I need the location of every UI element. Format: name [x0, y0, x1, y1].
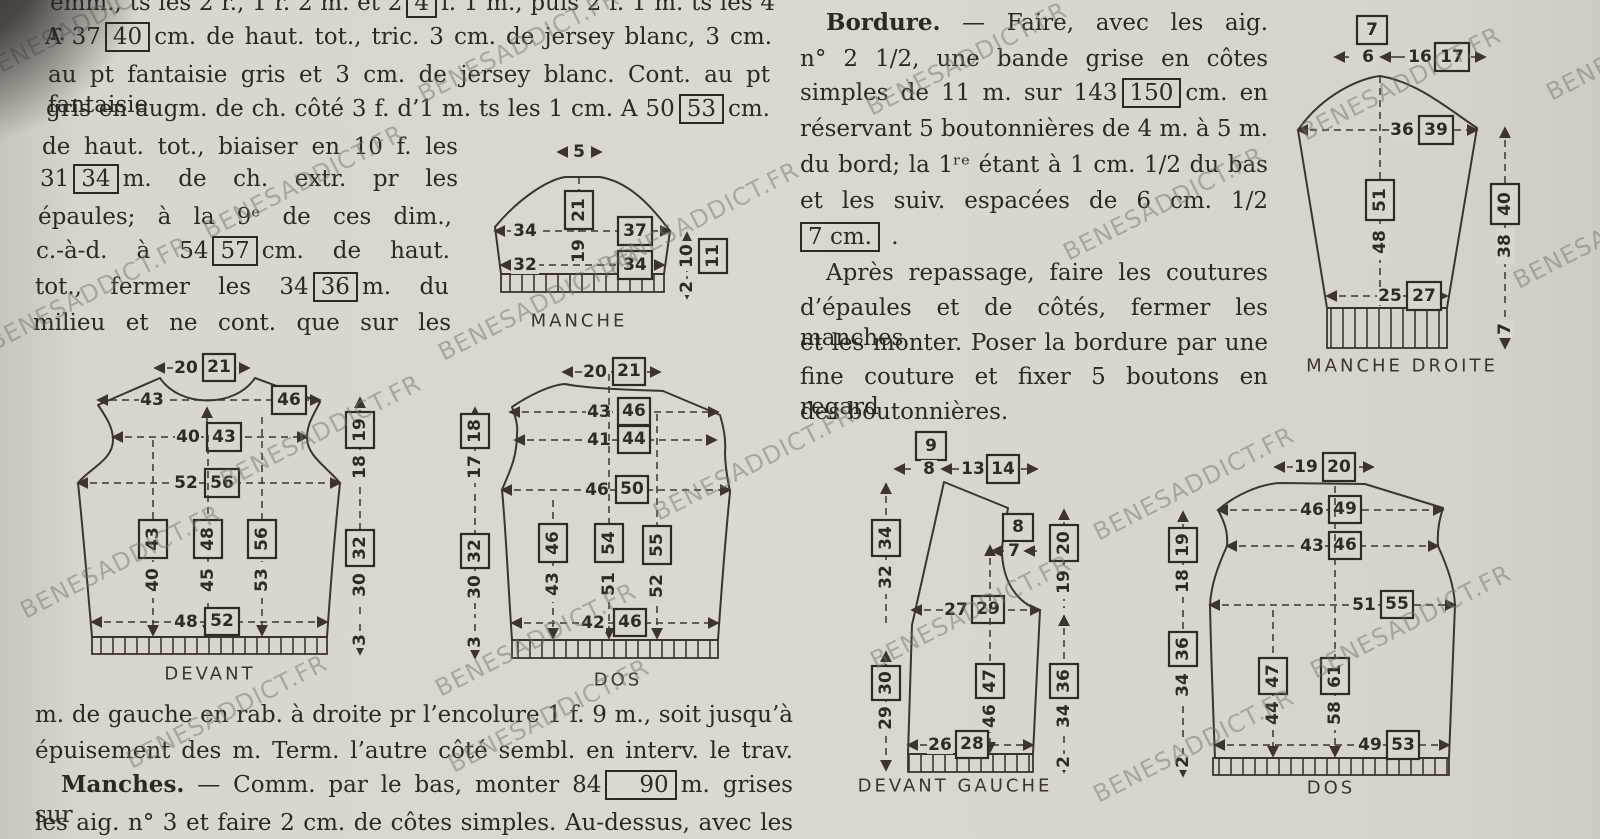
dos-hip-boxed: 46 [618, 612, 642, 632]
devant-chest-boxed: 56 [210, 473, 234, 493]
dg-rib-height: 2 [1054, 756, 1074, 768]
devant-outline [78, 378, 340, 637]
manche-side-height-boxed: 11 [703, 244, 723, 268]
devant-armhole-boxed: 19 [350, 418, 370, 442]
dos2-chest-boxed: 55 [1385, 594, 1409, 614]
devant-armhole: 18 [350, 455, 370, 479]
dos-rib [512, 640, 718, 658]
boxed-size-value: 90 [605, 770, 676, 800]
dos2-upper: 43 [1300, 536, 1324, 556]
dg-top-boxed: 9 [925, 436, 937, 456]
manche-top-width: 5 [573, 142, 585, 162]
manche-diagram: 5 21 19 34 37 32 34 10 11 2 MANCHE [480, 135, 770, 335]
devant-rib-height: 3 [350, 634, 370, 646]
devant-hip-boxed: 52 [210, 611, 234, 631]
dg-left-boxed: 34 [876, 526, 896, 550]
dg-left: 32 [876, 565, 896, 589]
text-segment: — Faire, avec les aig. [962, 10, 1268, 36]
dos-diagram: 20 21 43 46 41 44 46 50 46 43 54 [428, 350, 763, 690]
devant-upper: 40 [176, 427, 200, 447]
dos-armhole-boxed: 18 [465, 419, 485, 443]
manche-height-boxed: 21 [569, 198, 589, 222]
manche-height: 19 [569, 239, 589, 263]
devant-len2-boxed: 48 [198, 527, 218, 551]
dg-left2-boxed: 30 [876, 671, 896, 695]
boxed-size-value: 57 [212, 236, 257, 266]
text-segment: simples de 11 m. sur 143 [800, 80, 1118, 106]
dos2-neck-boxed: 20 [1327, 457, 1351, 477]
text-segment: cm. de haut. [262, 238, 450, 264]
devant-len3: 53 [252, 568, 272, 592]
text-segment: c.-à-d. à 54 [36, 238, 208, 264]
dg-mid-boxed: 47 [980, 669, 1000, 693]
dos2-len2: 58 [1325, 701, 1345, 725]
text-line: les aig. n° 3 et faire 2 cm. de côtes si… [35, 808, 793, 838]
devant-side: 30 [350, 573, 370, 597]
devant-label: DEVANT [164, 664, 255, 685]
manche-rib-height: 2 [677, 281, 697, 293]
dos-side-boxed: 32 [465, 539, 485, 563]
dos2-rib [1213, 758, 1449, 775]
dos-neck-boxed: 21 [617, 361, 641, 381]
dos2-side: 34 [1173, 673, 1193, 697]
text-line: c.-à-d. à 5457cm. de haut. [36, 236, 450, 266]
dg-waist-boxed: 29 [976, 599, 1000, 619]
manche-label: MANCHE [531, 311, 628, 332]
dg-top-right: 13 [961, 459, 985, 479]
dos2-shoulder-boxed: 49 [1333, 499, 1357, 519]
dos-len1-boxed: 46 [543, 531, 563, 555]
text-line: milieu et ne cont. que sur les [33, 308, 451, 338]
dos-len1: 43 [543, 572, 563, 596]
dos2-rib-height: 2 [1173, 756, 1193, 768]
text-segment: tot., fermer les 34 [35, 274, 309, 300]
text-segment: A 37 [45, 24, 101, 50]
devant-diagram: 20 21 43 46 40 43 52 56 43 40 [35, 350, 385, 685]
dos-hip: 42 [581, 613, 605, 633]
dg-neck: 7 [1008, 541, 1020, 561]
manche-droite-dimensions: 7 6 16 17 36 39 51 48 25 27 [1298, 16, 1519, 348]
md-height: 48 [1370, 230, 1390, 254]
devant-gauche-dimensions: 9 8 13 14 34 32 8 7 20 19 [872, 432, 1078, 772]
md-cap-left: 6 [1362, 47, 1374, 67]
paragraph-heading: Manches. [61, 771, 184, 798]
text-segment: 31 [40, 166, 69, 192]
devant-shoulder: 43 [140, 390, 164, 410]
dos-armhole: 17 [465, 455, 485, 479]
devant-neck-boxed: 21 [207, 357, 231, 377]
dos2-shoulder: 46 [1300, 500, 1324, 520]
text-segment: . [891, 224, 898, 250]
boxed-size-value: 150 [1122, 78, 1182, 108]
md-rib-height: 7 [1495, 323, 1515, 335]
dos-shoulder-boxed: 46 [622, 401, 646, 421]
text-line: n° 2 1/2, une bande grise en côtes [800, 44, 1268, 74]
dos2-dimensions: 19 20 46 49 43 46 51 55 47 44 61 [1169, 453, 1455, 776]
md-side-boxed: 40 [1495, 192, 1515, 216]
text-line: et les monter. Poser la bordure par une [800, 328, 1268, 358]
md-width: 36 [1390, 120, 1414, 140]
devant-len1: 40 [143, 568, 163, 592]
dos2-label: DOS [1307, 778, 1355, 796]
text-line: réservant 5 boutonnières de 4 m. à 5 m. [800, 114, 1268, 144]
devant-upper-boxed: 43 [212, 427, 236, 447]
boxed-size-value: 40 [105, 22, 150, 52]
md-width-boxed: 39 [1424, 120, 1448, 140]
text-segment: m. de ch. extr. pr les [123, 166, 458, 192]
boxed-size-value: 53 [679, 94, 724, 124]
dos2-armhole: 18 [1173, 569, 1193, 593]
devant-len3-boxed: 56 [252, 527, 272, 551]
dg-top-right-boxed: 14 [991, 459, 1015, 479]
dg-waist: 27 [944, 600, 968, 620]
dos2-upper-boxed: 46 [1333, 535, 1357, 555]
md-wrist-boxed: 27 [1412, 286, 1436, 306]
dos2-neck: 19 [1294, 457, 1318, 477]
devant-gauche-diagram: 9 8 13 14 34 32 8 7 20 19 [855, 420, 1190, 795]
dos-len3-boxed: 55 [647, 533, 667, 557]
text-line: m. de gauche en rab. à droite pr l’encol… [35, 700, 793, 730]
dg-armhole-boxed: 20 [1054, 531, 1074, 555]
devant-hip: 48 [174, 612, 198, 632]
dg-right-boxed: 36 [1054, 669, 1074, 693]
text-segment: emm., ts les 2 r., 1 r. 2 m. et 2 [50, 0, 402, 16]
md-cap-right-boxed: 17 [1440, 47, 1464, 67]
md-cap-right: 16 [1408, 47, 1432, 67]
text-line: tot., fermer les 3436m. du [35, 272, 449, 302]
dos2-hip: 49 [1358, 735, 1382, 755]
dg-mid: 46 [980, 704, 1000, 728]
text-line: épaules; à la 9ᵉ de ces dim., [38, 202, 452, 232]
text-line: Bordure. — Faire, avec les aig. [800, 8, 1268, 38]
boxed-size-value: 4 [406, 0, 437, 18]
md-cap-boxed: 7 [1366, 20, 1378, 40]
devant-shoulder-boxed: 46 [277, 390, 301, 410]
boxed-size-value: 34 [73, 164, 118, 194]
text-line: et les suiv. espacées de 6 cm. 1/2 [800, 186, 1268, 216]
text-segment: m. du [362, 274, 449, 300]
text-segment: cm. [728, 96, 770, 122]
devant-chest: 52 [174, 473, 198, 493]
dg-top-left: 8 [923, 459, 935, 479]
dos2-armhole-boxed: 19 [1173, 533, 1193, 557]
devant-len2: 45 [198, 568, 218, 592]
boxed-size-value: 7 cm. [800, 222, 880, 252]
text-line: gris en augm. de ch. côté 3 f. d’1 m. ts… [46, 94, 770, 124]
devant-len1-boxed: 43 [143, 527, 163, 551]
dos-chest: 46 [585, 480, 609, 500]
devant-gauche-label: DEVANT GAUCHE [858, 776, 1053, 796]
dos2-side-boxed: 36 [1173, 637, 1193, 661]
devant-rib [92, 637, 327, 654]
dos-len2: 51 [599, 572, 619, 596]
manche-upper-width-boxed: 37 [623, 221, 647, 241]
dos-label: DOS [594, 670, 642, 691]
dos-side: 30 [465, 575, 485, 599]
dg-hip: 26 [928, 735, 952, 755]
dg-armhole: 19 [1054, 570, 1074, 594]
dos2-len1: 44 [1263, 701, 1283, 725]
dos-upper-boxed: 44 [622, 429, 646, 449]
manche-lower-width: 32 [513, 255, 537, 275]
dg-hip-boxed: 28 [960, 734, 984, 754]
text-line: du bord; la 1ʳᵉ étant à 1 cm. 1/2 du bas [800, 150, 1268, 180]
boxed-size-value: 36 [313, 272, 358, 302]
devant-side-boxed: 32 [350, 536, 370, 560]
dos-chest-boxed: 50 [620, 479, 644, 499]
manche-upper-width: 34 [513, 221, 537, 241]
manche-droite-diagram: 7 6 16 17 36 39 51 48 25 27 [1265, 8, 1555, 376]
dg-neck-boxed: 8 [1012, 517, 1024, 537]
manche-lower-width-boxed: 34 [623, 255, 647, 275]
text-line: 3134m. de ch. extr. pr les [40, 164, 458, 194]
md-wrist: 25 [1378, 286, 1402, 306]
manche-droite-rib [1327, 308, 1447, 348]
md-height-boxed: 51 [1370, 188, 1390, 212]
dos-len2-boxed: 54 [599, 531, 619, 555]
devant-neck: 20 [174, 358, 198, 378]
dg-left2: 29 [876, 706, 896, 730]
text-segment: cm. de haut. tot., tric. 3 cm. de jersey… [154, 24, 772, 50]
text-line: épuisement des m. Term. l’autre côté sem… [35, 736, 793, 766]
dos-upper: 41 [587, 430, 611, 450]
dg-right: 34 [1054, 704, 1074, 728]
dos2-diagram: 19 20 46 49 43 46 51 55 47 44 61 [1165, 420, 1505, 795]
dos-neck: 20 [583, 362, 607, 382]
text-segment: cm. en [1185, 80, 1268, 106]
md-side: 38 [1495, 234, 1515, 258]
dos2-len2-boxed: 61 [1325, 664, 1345, 688]
dos-len3: 52 [647, 574, 667, 598]
dos-rib-height: 3 [465, 636, 485, 648]
text-line: simples de 11 m. sur 143150cm. en [800, 78, 1268, 108]
text-segment: — Comm. par le bas, monter 84 [197, 772, 601, 798]
text-line: Après repassage, faire les coutures [800, 258, 1268, 288]
text-segment: gris en augm. de ch. côté 3 f. d’1 m. ts… [46, 96, 675, 122]
dos-shoulder: 43 [587, 402, 611, 422]
text-line: A 3740cm. de haut. tot., tric. 3 cm. de … [45, 22, 772, 52]
text-line: 7 cm. . [800, 222, 1268, 252]
manche-droite-label: MANCHE DROITE [1306, 356, 1498, 377]
manche-side-height: 10 [677, 244, 697, 268]
dos2-hip-boxed: 53 [1391, 735, 1415, 755]
dos2-chest: 51 [1352, 595, 1376, 615]
text-line: de haut. tot., biaiser en 10 f. les [42, 132, 458, 162]
dos2-len1-boxed: 47 [1263, 664, 1283, 688]
paragraph-heading: Bordure. [826, 9, 940, 36]
scanned-pattern-page: emm., ts les 2 r., 1 r. 2 m. et 24f. 1 m… [0, 0, 1600, 839]
